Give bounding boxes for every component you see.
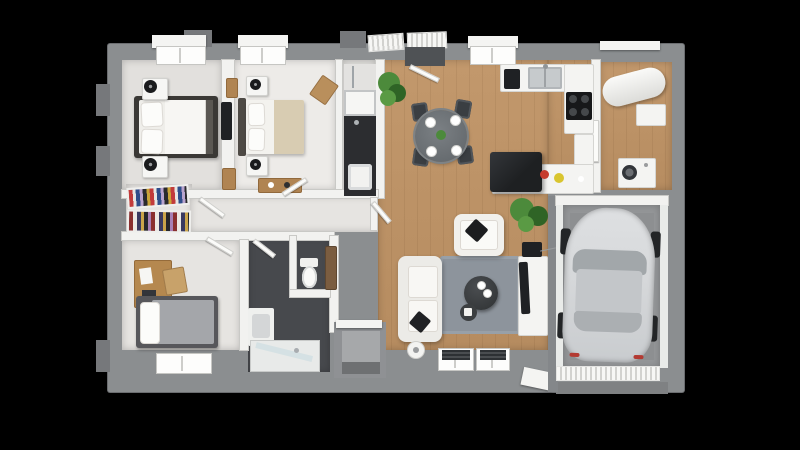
shower-fixture [294,348,299,353]
window-bedroom1 [156,46,206,65]
burner [581,108,589,116]
dark-cabinet [490,152,542,192]
kitchen-faucet [543,64,548,69]
car-taillight [569,353,579,357]
bed1-pillow [140,101,163,127]
floor-plan-render [0,0,800,450]
bed1-pillow [141,129,164,155]
bed2-lamp [250,79,261,90]
bed2-headboard [238,98,246,156]
plate [426,118,435,127]
wall-bed2-shower [336,60,342,198]
bed1-dresser [222,168,236,190]
car-roof [575,269,642,315]
car-taillight [633,355,643,359]
wall-hallway-south [122,232,334,240]
dressing-shelf [126,184,189,209]
burner [569,95,577,103]
back-door-threshold [336,320,382,328]
bed1-lamp [144,158,157,171]
bed1-foot-runner [206,100,213,154]
garage-wall-lining [660,205,668,368]
bed3-duvet [152,300,214,344]
exterior-pillar [96,340,110,372]
washer-door [622,165,637,180]
wc-door [325,246,337,290]
exterior-pillar [96,146,110,176]
utility-cabinet [636,104,666,126]
bed2-blanket [274,100,304,154]
sofa-cushion [408,266,438,298]
coffee-cup [484,290,491,297]
bathroom-basin [252,314,270,338]
shower-column [352,66,354,88]
coffee-machine [504,69,520,89]
toilet-bowl [302,266,317,288]
desk-paper [139,267,153,285]
table-centerpiece [436,130,446,140]
entry-plant [380,90,396,106]
burner [569,108,577,116]
back-steps-shadow [342,362,380,374]
coffee-cup [478,282,485,289]
wall-wc [290,290,330,297]
bed1-wall-tv [221,102,232,140]
faucet [354,120,359,125]
bed2-pillow [248,103,266,127]
sideboard-item [268,182,274,188]
window-kitchen [470,46,516,65]
car-rear-window [573,311,642,333]
counter-item [578,176,584,182]
chimney [340,31,366,48]
washer-button [644,163,648,167]
garage-wall-lining [556,196,668,205]
entrance-steps [367,33,404,52]
garage-apron [556,382,668,394]
plate [452,146,461,155]
fruit-bowl [540,170,549,179]
exterior-pillar [96,84,110,116]
garage-door [556,366,660,381]
burner [581,95,589,103]
washbasin [348,164,372,190]
bed1-lamp [144,80,157,93]
roof-trim [600,41,660,50]
bed2-lamp [250,159,261,170]
stool-item [464,308,472,316]
plate [451,116,460,125]
living-plant [518,216,534,232]
bed2-pillow [248,128,266,152]
plate-item [554,173,564,183]
window-living2-blind [480,350,506,360]
sink-divider [544,69,546,87]
wall-wc [290,236,296,294]
front-door-opening [405,47,445,66]
bed3-pillow [140,302,160,344]
wall-console [226,78,238,98]
shower-room-upper [344,64,376,90]
kitchen-cabinet [574,134,594,166]
window-bedroom3 [156,353,212,374]
speaker [522,242,542,257]
plate [427,147,436,156]
window-living1-blind [442,350,470,360]
bed1-duvet [165,100,206,154]
shower-tray [344,90,376,116]
back-steps-ramp [342,331,380,363]
dressing-shelf [127,209,191,233]
window-bedroom2 [240,46,286,65]
wall-bed3-bathroom [240,240,248,350]
bed3-chair [162,266,188,295]
car [559,206,658,363]
side-table-vase [413,347,419,353]
